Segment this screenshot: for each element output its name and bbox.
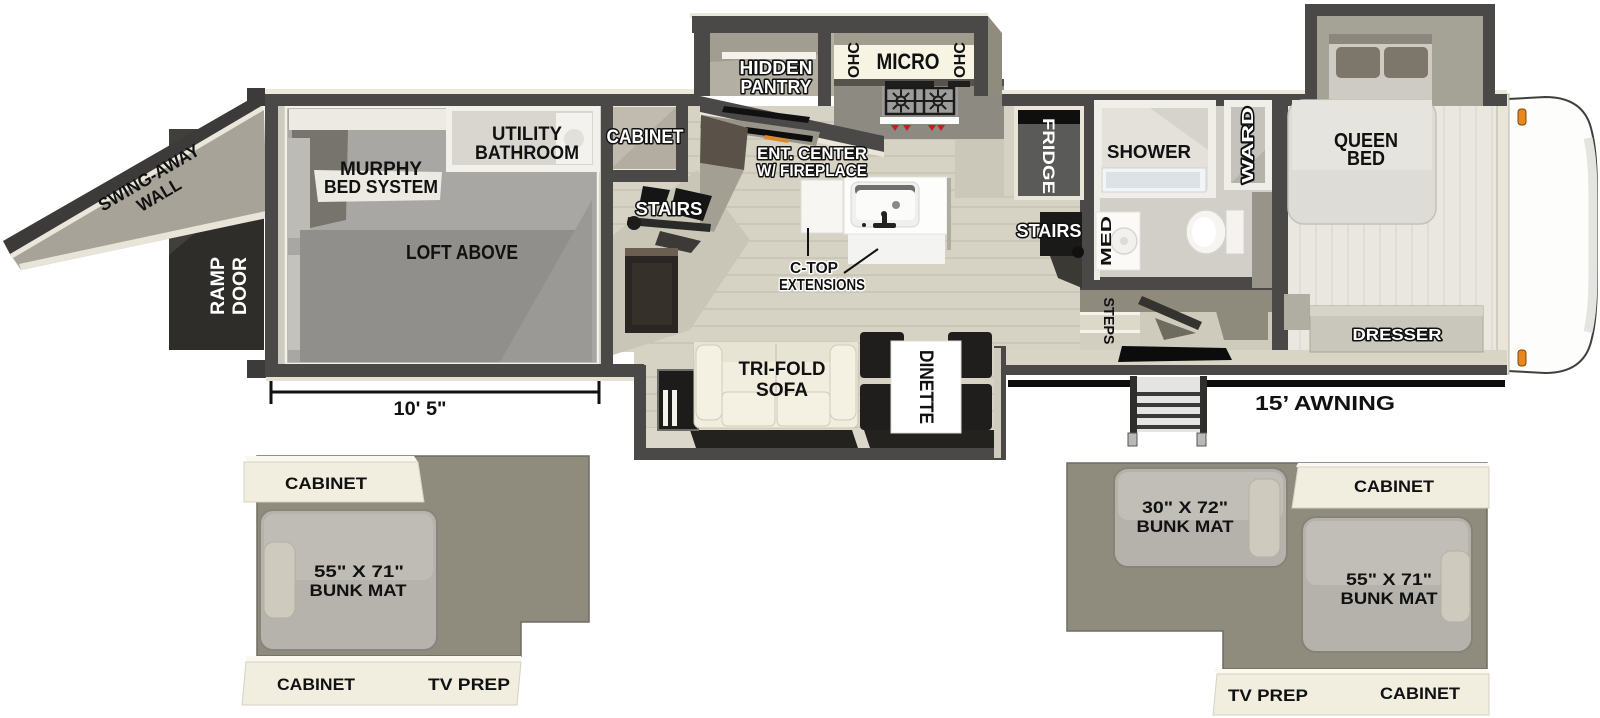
svg-text:BED SYSTEM: BED SYSTEM xyxy=(324,177,438,197)
svg-text:BED: BED xyxy=(1347,148,1385,170)
svg-text:PANTRY: PANTRY xyxy=(741,77,812,97)
svg-text:DINETTE: DINETTE xyxy=(915,350,936,424)
svg-text:DOOR: DOOR xyxy=(230,257,251,315)
svg-text:BUNK MAT: BUNK MAT xyxy=(1137,517,1235,536)
svg-text:WARD: WARD xyxy=(1240,107,1257,183)
svg-text:STAIRS: STAIRS xyxy=(1017,221,1082,241)
svg-text:CABINET: CABINET xyxy=(607,127,684,148)
svg-text:TV PREP: TV PREP xyxy=(1228,686,1308,705)
svg-text:C-TOP: C-TOP xyxy=(790,260,838,277)
svg-text:CABINET: CABINET xyxy=(1380,684,1461,703)
svg-text:STEPS: STEPS xyxy=(1100,298,1117,345)
svg-text:15’ AWNING: 15’ AWNING xyxy=(1255,393,1395,415)
svg-text:55" X 71": 55" X 71" xyxy=(314,562,404,581)
svg-text:BUNK MAT: BUNK MAT xyxy=(1341,589,1439,608)
svg-text:TV PREP: TV PREP xyxy=(428,675,510,694)
svg-text:DRESSER: DRESSER xyxy=(1353,327,1443,344)
svg-text:MED: MED xyxy=(1098,216,1115,266)
svg-text:FRIDGE: FRIDGE xyxy=(1039,118,1058,194)
svg-text:HIDDEN: HIDDEN xyxy=(740,58,813,78)
svg-text:STAIRS: STAIRS xyxy=(636,199,703,219)
svg-text:BATHROOM: BATHROOM xyxy=(475,143,579,164)
svg-text:RAMP: RAMP xyxy=(208,257,229,315)
svg-text:CABINET: CABINET xyxy=(1354,477,1435,496)
svg-text:W/ FIREPLACE: W/ FIREPLACE xyxy=(757,161,867,180)
svg-text:10' 5": 10' 5" xyxy=(394,399,447,420)
svg-text:CABINET: CABINET xyxy=(277,675,356,694)
svg-text:OHC: OHC xyxy=(952,42,969,78)
svg-text:SHOWER: SHOWER xyxy=(1107,142,1191,162)
svg-text:EXTENSIONS: EXTENSIONS xyxy=(779,277,865,294)
svg-text:CABINET: CABINET xyxy=(285,474,368,493)
svg-text:BUNK MAT: BUNK MAT xyxy=(310,581,408,600)
svg-text:TRI-FOLD: TRI-FOLD xyxy=(739,359,826,380)
svg-text:UTILITY: UTILITY xyxy=(492,124,562,145)
svg-text:OHC: OHC xyxy=(846,42,863,78)
svg-text:SOFA: SOFA xyxy=(756,380,808,401)
svg-text:55" X 71": 55" X 71" xyxy=(1346,570,1432,589)
svg-text:MICRO: MICRO xyxy=(877,49,940,74)
svg-text:LOFT ABOVE: LOFT ABOVE xyxy=(406,242,518,264)
svg-text:30" X 72": 30" X 72" xyxy=(1142,498,1228,517)
